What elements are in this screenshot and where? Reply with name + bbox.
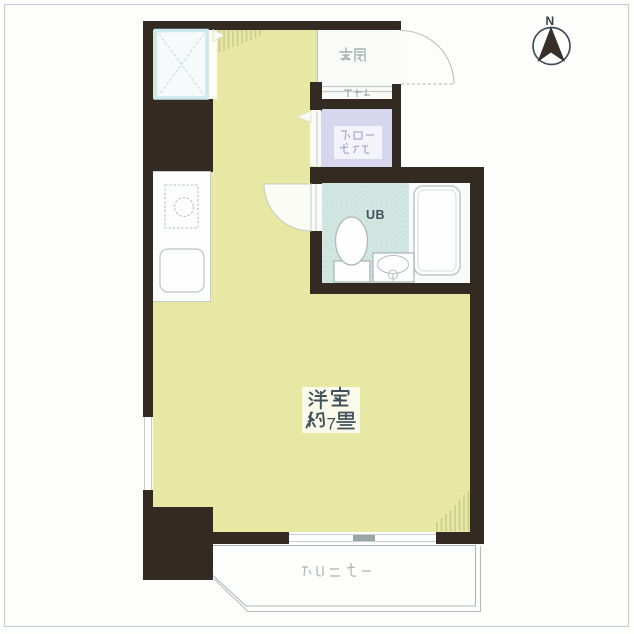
svg-text:N: N — [546, 14, 555, 28]
svg-text:UB: UB — [366, 208, 385, 222]
svg-text:7: 7 — [327, 415, 336, 434]
